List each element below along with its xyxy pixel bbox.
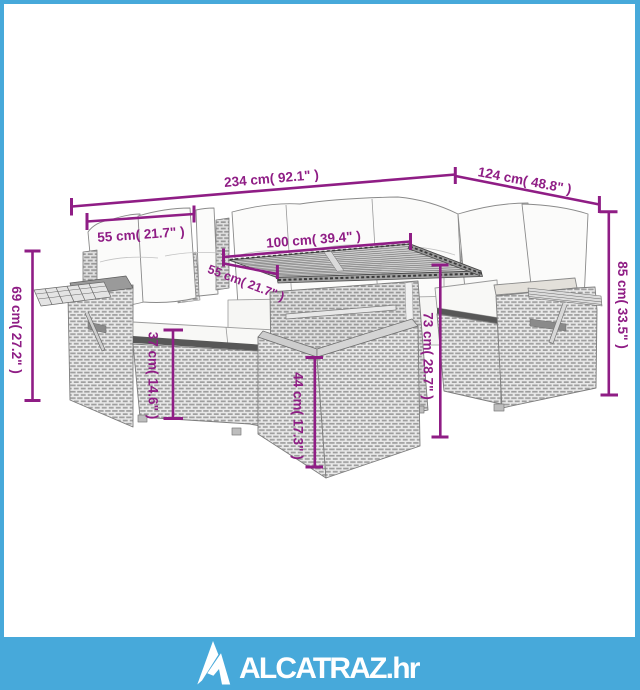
svg-text:69 cm( 27.2" ): 69 cm( 27.2" ) <box>9 286 24 373</box>
svg-text:73 cm( 28.7" ): 73 cm( 28.7" ) <box>421 312 436 399</box>
svg-text:37 cm( 14.6" ): 37 cm( 14.6" ) <box>146 332 161 419</box>
svg-text:85 cm( 33.5" ): 85 cm( 33.5" ) <box>615 261 630 348</box>
svg-text:ALCATRAZ.hr: ALCATRAZ.hr <box>239 652 421 685</box>
svg-text:44 cm( 17.3" ): 44 cm( 17.3" ) <box>291 372 306 459</box>
